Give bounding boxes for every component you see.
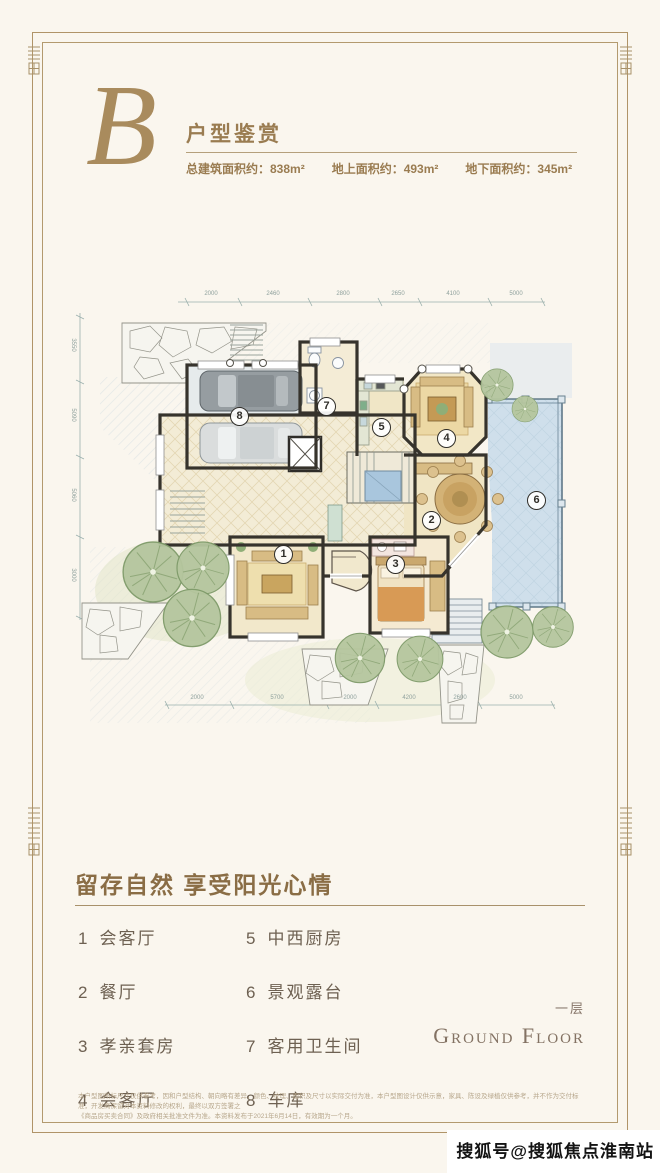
legend-item: 6 景观露台 (246, 978, 362, 1003)
dim-label: 2000 (204, 291, 217, 297)
area-stats: 总建筑面积约：838m²地上面积约：493m²地下面积约：345m² (186, 160, 586, 177)
legend-item-number: 3 (78, 1037, 89, 1057)
room-badge-suite: 3 (386, 555, 405, 574)
dim-label: 2460 (266, 291, 279, 297)
floor-label-cn: 一层 (433, 998, 585, 1017)
legend-item-label: 会客厅 (99, 924, 156, 949)
legend-item-label: 餐厅 (99, 978, 137, 1003)
frame-ornament-icon (618, 806, 634, 864)
legend-item-label: 客用卫生间 (267, 1032, 362, 1057)
legend-item-number: 5 (246, 929, 257, 949)
dim-label: 2600 (453, 695, 466, 701)
room-badge-sitting: 4 (437, 429, 456, 448)
dim-label: 4200 (402, 695, 415, 701)
floor-plan-illustration (70, 285, 590, 725)
legend-item-label: 中西厨房 (267, 924, 343, 949)
poster-page: B 户型鉴赏 总建筑面积约：838m²地上面积约：493m²地下面积约：345m… (0, 0, 660, 1173)
legend-item: 3 孝亲套房 (78, 1032, 246, 1057)
dim-label: 5000 (509, 291, 522, 297)
room-badge-terrace: 6 (527, 491, 546, 510)
watermark-label: 搜狐号@搜狐焦点淮南站 (447, 1130, 660, 1173)
disclaimer-text: 本户型图所标尺寸仅供参考，因和户型结构、朝向略有差异，颜色、纹理、面积及尺寸以实… (78, 1092, 582, 1122)
legend-item-number: 1 (78, 929, 89, 949)
section-divider (75, 905, 585, 906)
legend-item-label: 孝亲套房 (99, 1032, 175, 1057)
dim-label: 5060 (70, 488, 76, 501)
disclaimer-line-1: 本户型图所标尺寸仅供参考，因和户型结构、朝向略有差异，颜色、纹理、面积及尺寸以实… (78, 1092, 582, 1112)
dim-label: 4100 (446, 291, 459, 297)
room-legend: 1 会客厅 2 餐厅 3 孝亲套房 4 会客厅 5 中西厨房 6 景观露台 7 … (78, 924, 362, 1111)
legend-item: 5 中西厨房 (246, 924, 362, 949)
dim-label: 5700 (270, 695, 283, 701)
floor-plan: 2000 2460 2800 2650 4100 5000 2000 5700 … (70, 285, 590, 725)
room-badge-dining: 2 (422, 511, 441, 530)
frame-ornament-icon (26, 45, 42, 81)
frame-ornament-icon (618, 45, 634, 81)
floor-label-block: 一层 Ground Floor (433, 998, 585, 1049)
area-stat: 地上面积约：493m² (332, 160, 439, 177)
dim-label: 2800 (336, 291, 349, 297)
dim-label: 2650 (391, 291, 404, 297)
disclaimer-line-2: 《商品房买卖合同》及政府相关批准文件为准。本资料发布于2021年6月14日，有效… (78, 1112, 582, 1122)
room-badge-kitchen: 5 (372, 418, 391, 437)
unit-type-logo: B (86, 68, 157, 184)
room-badge-bathroom: 7 (317, 397, 336, 416)
legend-item-number: 7 (246, 1037, 257, 1057)
legend-item: 7 客用卫生间 (246, 1032, 362, 1057)
dim-label: 2000 (190, 695, 203, 701)
dim-label: 2000 (343, 695, 356, 701)
area-stat: 总建筑面积约：838m² (186, 160, 305, 177)
legend-item-number: 6 (246, 983, 257, 1003)
dim-label: 5090 (70, 408, 76, 421)
header-divider (186, 152, 577, 153)
room-badge-garage: 8 (230, 407, 249, 426)
frame-ornament-icon (26, 806, 42, 864)
area-stat: 地下面积约：345m² (465, 160, 572, 177)
section-headline: 留存自然 享受阳光心情 (75, 866, 333, 900)
dim-label: 3000 (70, 568, 76, 581)
legend-item-number: 2 (78, 983, 89, 1003)
legend-item: 1 会客厅 (78, 924, 246, 949)
floor-label-en: Ground Floor (433, 1023, 585, 1049)
legend-item-label: 景观露台 (267, 978, 343, 1003)
dim-label: 3550 (70, 338, 76, 351)
dim-label: 5000 (509, 695, 522, 701)
room-badge-living: 1 (274, 545, 293, 564)
page-title: 户型鉴赏 (186, 118, 282, 148)
legend-item: 2 餐厅 (78, 978, 246, 1003)
